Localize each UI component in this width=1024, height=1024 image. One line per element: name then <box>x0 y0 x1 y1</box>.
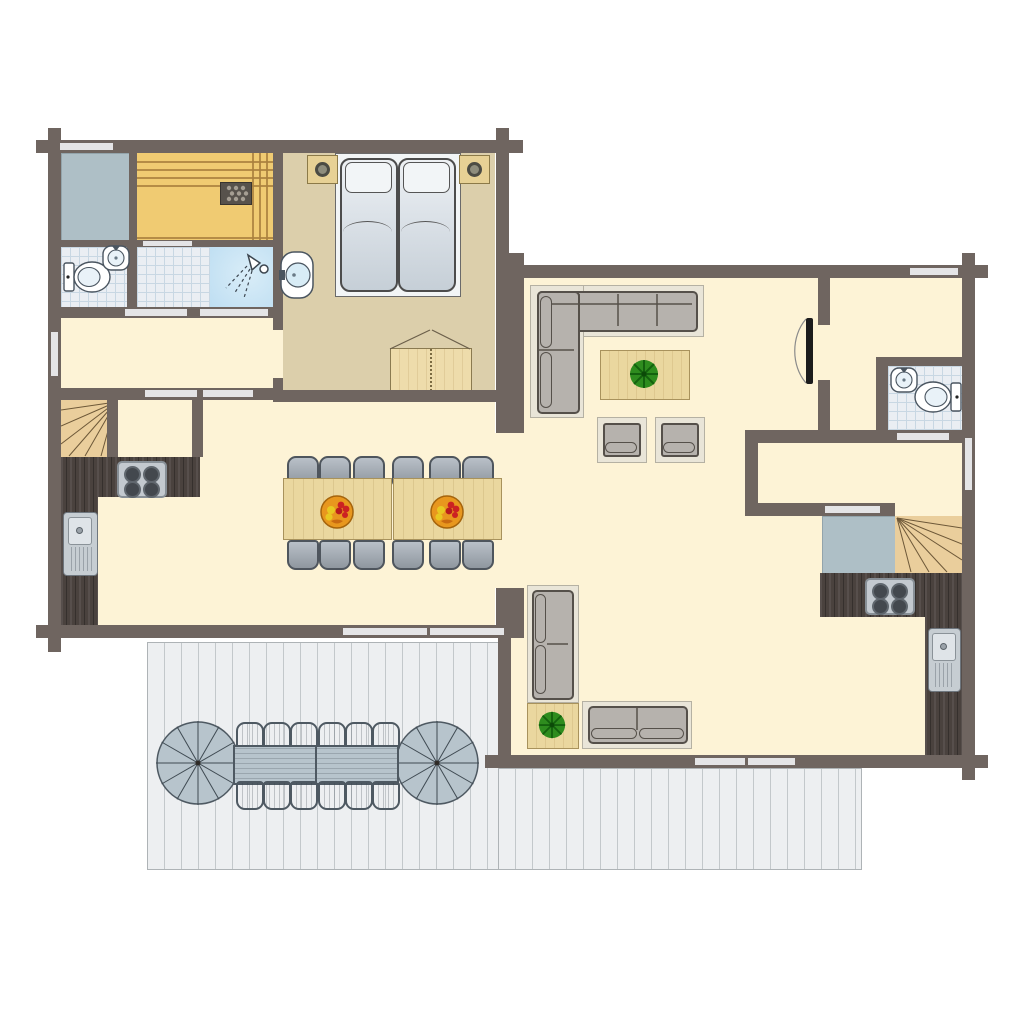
sauna-heater-icon <box>220 182 252 205</box>
faucet-dot <box>940 643 947 650</box>
burner <box>891 598 908 615</box>
table-lamp-icon <box>315 162 330 177</box>
nightstand <box>307 155 338 184</box>
stair-treads-icon <box>895 516 962 573</box>
door-opening <box>145 390 197 397</box>
toilet-icon <box>912 378 962 416</box>
cushion-divider <box>539 349 574 351</box>
wall <box>192 400 203 457</box>
outdoor-table <box>233 745 317 785</box>
storage-cupboard <box>822 516 897 575</box>
window <box>910 268 958 275</box>
wall <box>818 380 830 433</box>
cushion-divider <box>617 294 619 326</box>
back-cushion <box>540 352 552 408</box>
burner <box>872 598 889 615</box>
wall <box>48 128 61 652</box>
stove-icon <box>865 578 915 615</box>
wall <box>509 588 524 638</box>
pillow <box>403 162 450 193</box>
cushion-divider <box>578 294 580 326</box>
window <box>748 758 795 765</box>
sauna-bench-line <box>252 153 254 240</box>
wardrobe-door-lines <box>388 328 472 350</box>
kitchen-sink-icon <box>63 512 98 576</box>
terrace-chair <box>345 781 373 810</box>
sauna-bench-line <box>266 153 268 240</box>
wall <box>129 153 137 240</box>
terrace-chair <box>318 781 346 810</box>
wardrobe <box>390 348 472 392</box>
wall <box>496 128 509 433</box>
dining-chair <box>462 540 494 570</box>
door-opening <box>897 433 949 440</box>
potted-plant-icon <box>628 358 660 390</box>
shower-head-icon <box>214 250 270 304</box>
seat-cushion <box>639 728 684 739</box>
wall <box>818 278 830 325</box>
drainboard <box>932 663 955 687</box>
window <box>430 628 504 635</box>
pillow <box>345 162 392 193</box>
deck-right <box>498 768 862 870</box>
door-opening <box>825 506 880 513</box>
wall <box>876 357 962 366</box>
dining-chair <box>287 540 319 570</box>
sauna-bench-edge <box>137 237 273 239</box>
room-technical <box>61 153 131 242</box>
floor-plan <box>0 0 1024 1024</box>
wall <box>496 588 509 625</box>
armchair <box>597 417 647 463</box>
door-opening <box>125 309 187 316</box>
cushion-divider <box>540 303 692 305</box>
parasol-icon <box>395 721 479 805</box>
fruit-bowl-icon <box>429 494 465 530</box>
seat-cushion <box>591 728 637 739</box>
faucet-dot <box>76 527 83 534</box>
washbasin-icon <box>102 245 130 271</box>
wall <box>107 400 118 457</box>
door-leaf <box>806 318 813 384</box>
wall <box>962 253 975 780</box>
armchair <box>655 417 705 463</box>
burner <box>124 481 141 498</box>
seat-cushion <box>605 442 637 453</box>
back-cushion <box>535 594 546 643</box>
potted-plant-icon <box>537 710 567 740</box>
outdoor-table <box>315 745 399 785</box>
terrace-chair <box>236 781 264 810</box>
wall <box>509 253 524 433</box>
door-opening <box>203 390 253 397</box>
seat-cushion <box>663 442 695 453</box>
nightstand <box>459 155 490 184</box>
back-cushion <box>540 296 552 348</box>
sauna-bench-line <box>259 153 261 240</box>
wall <box>273 390 508 402</box>
cushion-divider <box>636 708 638 730</box>
terrace-chair <box>372 781 400 810</box>
door-swing-arc <box>788 318 808 384</box>
door-opening <box>143 241 192 246</box>
door-opening <box>200 309 268 316</box>
kitchen-sink-icon <box>928 628 961 692</box>
stove-icon <box>117 461 167 498</box>
wall <box>498 638 511 768</box>
window <box>965 438 972 490</box>
back-cushion <box>535 645 546 694</box>
cushion-divider <box>656 294 658 326</box>
cushion-divider <box>547 643 568 645</box>
window <box>60 143 113 150</box>
wall <box>876 357 888 433</box>
wardrobe-door-split <box>430 349 432 391</box>
washbasin-icon <box>279 249 315 301</box>
dining-chair <box>319 540 351 570</box>
terrace-chair <box>290 781 318 810</box>
drainboard <box>68 547 92 571</box>
window <box>695 758 745 765</box>
room-sauna <box>137 153 273 240</box>
terrace-chair <box>263 781 291 810</box>
dining-chair <box>429 540 461 570</box>
burner <box>143 481 160 498</box>
parasol-icon <box>156 721 240 805</box>
window <box>51 332 58 376</box>
fruit-bowl-icon <box>319 494 355 530</box>
dining-chair <box>353 540 385 570</box>
dining-chair <box>392 540 424 570</box>
window <box>343 628 427 635</box>
table-lamp-icon <box>467 162 482 177</box>
